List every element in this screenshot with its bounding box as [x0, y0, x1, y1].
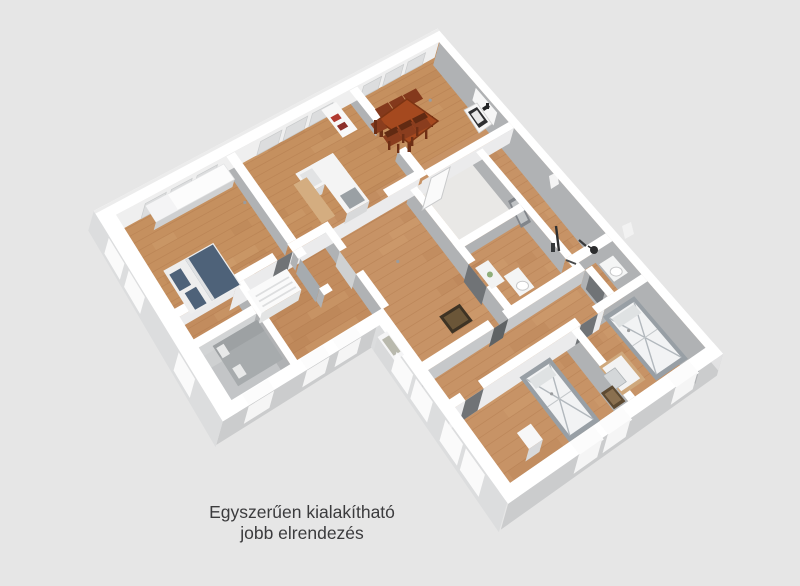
svg-text:Egyszerűen kialakítható: Egyszerűen kialakítható: [209, 502, 395, 522]
svg-text:jobb elrendezés: jobb elrendezés: [239, 523, 364, 543]
